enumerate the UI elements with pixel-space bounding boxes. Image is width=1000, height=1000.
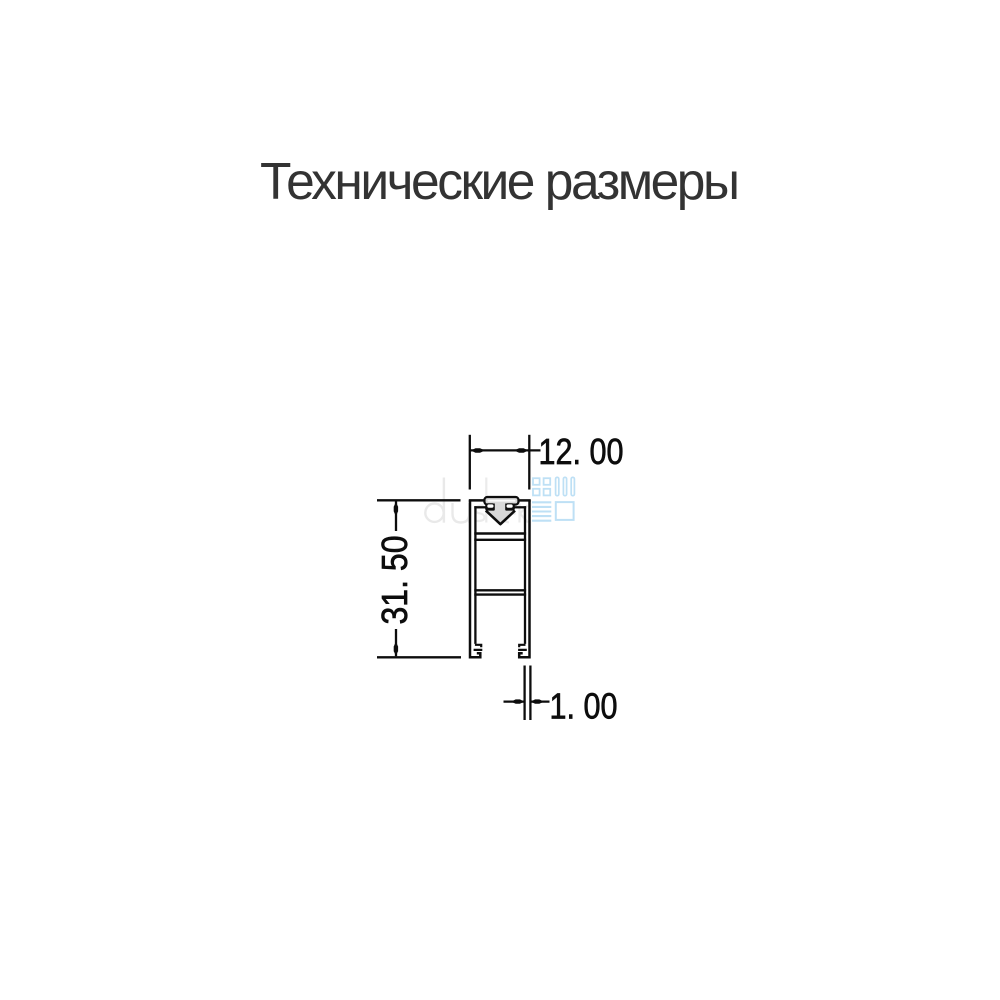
svg-text:1. 00: 1. 00: [550, 685, 618, 726]
svg-text:12. 00: 12. 00: [539, 431, 624, 472]
svg-text:Технические размеры: Технические размеры: [260, 152, 740, 210]
svg-text:31. 50: 31. 50: [374, 536, 415, 625]
